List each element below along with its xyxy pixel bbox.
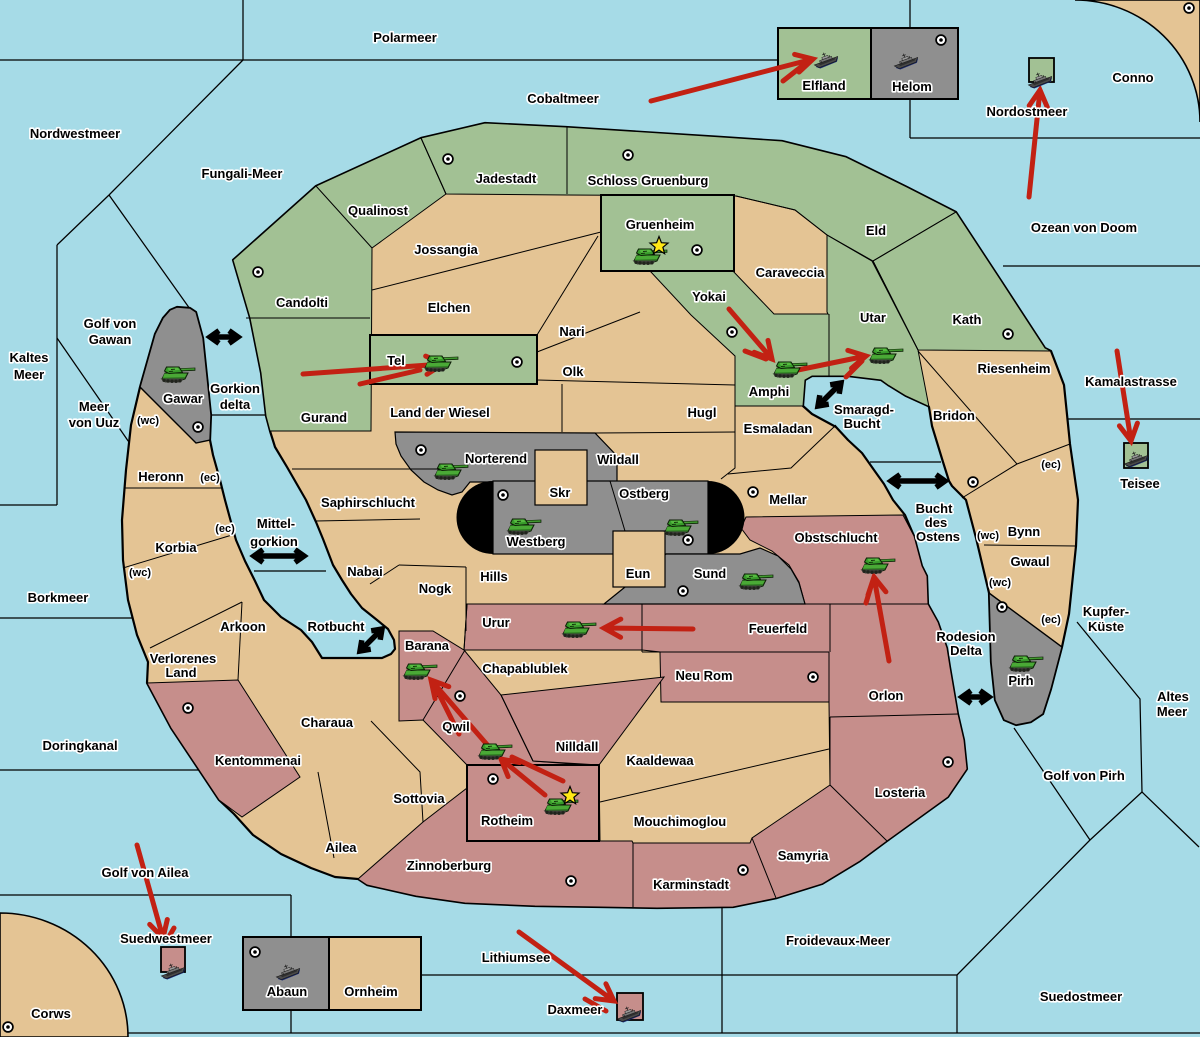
svg-text:Bynn: Bynn	[1008, 524, 1041, 539]
svg-text:Daxmeer: Daxmeer	[548, 1002, 603, 1017]
svg-text:Pirh: Pirh	[1008, 673, 1033, 688]
svg-text:Arkoon: Arkoon	[220, 619, 266, 634]
svg-text:Gorkion: Gorkion	[210, 381, 260, 396]
svg-text:Gwaul: Gwaul	[1010, 554, 1049, 569]
svg-text:(wc): (wc)	[989, 577, 1011, 589]
svg-text:Golf von Ailea: Golf von Ailea	[102, 865, 190, 880]
svg-text:Nordwestmeer: Nordwestmeer	[30, 126, 120, 141]
svg-text:Esmaladan: Esmaladan	[744, 421, 813, 436]
svg-text:Lithiumsee: Lithiumsee	[482, 950, 551, 965]
svg-text:Ostens: Ostens	[916, 529, 960, 544]
svg-text:(wc): (wc)	[137, 415, 159, 427]
svg-text:Kupfer-: Kupfer-	[1083, 604, 1129, 619]
svg-text:Kamalastrasse: Kamalastrasse	[1085, 374, 1177, 389]
svg-text:Kentommenai: Kentommenai	[215, 753, 301, 768]
svg-text:Chapablublek: Chapablublek	[482, 661, 568, 676]
svg-text:des: des	[925, 515, 947, 530]
svg-text:Gawan: Gawan	[89, 332, 132, 347]
svg-text:(wc): (wc)	[129, 567, 151, 579]
svg-text:Rotbucht: Rotbucht	[307, 619, 365, 634]
svg-text:Gawar: Gawar	[163, 391, 203, 406]
svg-text:Tel: Tel	[387, 353, 405, 368]
svg-text:Charaua: Charaua	[301, 715, 354, 730]
svg-text:von Uuz: von Uuz	[69, 415, 120, 430]
svg-text:Meer: Meer	[1157, 704, 1187, 719]
svg-text:Golf von: Golf von	[84, 316, 137, 331]
svg-text:Bucht: Bucht	[916, 501, 954, 516]
svg-text:Orlon: Orlon	[869, 688, 904, 703]
svg-text:gorkion: gorkion	[250, 534, 298, 549]
svg-text:Polarmeer: Polarmeer	[373, 30, 437, 45]
svg-text:Jadestadt: Jadestadt	[476, 171, 537, 186]
svg-text:Gruenheim: Gruenheim	[626, 217, 695, 232]
svg-text:Eun: Eun	[626, 566, 651, 581]
svg-text:(wc): (wc)	[977, 530, 999, 542]
svg-text:Altes: Altes	[1157, 689, 1189, 704]
svg-text:Delta: Delta	[950, 643, 983, 658]
svg-text:Qualinost: Qualinost	[348, 203, 409, 218]
svg-text:Feuerfeld: Feuerfeld	[749, 621, 808, 636]
svg-text:(ec): (ec)	[1041, 614, 1061, 626]
svg-text:Saphirschlucht: Saphirschlucht	[321, 495, 416, 510]
svg-text:Land: Land	[165, 665, 196, 680]
svg-text:Hugl: Hugl	[688, 405, 717, 420]
svg-text:Conno: Conno	[1112, 70, 1153, 85]
svg-text:Suedwestmeer: Suedwestmeer	[120, 931, 212, 946]
svg-text:Nabai: Nabai	[347, 564, 382, 579]
svg-text:Suedostmeer: Suedostmeer	[1040, 989, 1122, 1004]
svg-text:Nari: Nari	[559, 324, 584, 339]
svg-text:Teisee: Teisee	[1120, 476, 1160, 491]
svg-text:Utar: Utar	[860, 310, 886, 325]
svg-text:Kaaldewaa: Kaaldewaa	[626, 753, 694, 768]
svg-text:Ornheim: Ornheim	[344, 984, 397, 999]
svg-text:Froidevaux-Meer: Froidevaux-Meer	[786, 933, 890, 948]
svg-text:Norterend: Norterend	[465, 451, 527, 466]
svg-text:Nordostmeer: Nordostmeer	[987, 104, 1068, 119]
svg-text:Eld: Eld	[866, 223, 886, 238]
svg-text:Sund: Sund	[694, 566, 727, 581]
svg-text:Borkmeer: Borkmeer	[28, 590, 89, 605]
svg-text:Bridon: Bridon	[933, 408, 975, 423]
svg-text:Westberg: Westberg	[507, 534, 566, 549]
svg-text:Verlorenes: Verlorenes	[150, 651, 217, 666]
svg-text:Kath: Kath	[953, 312, 982, 327]
svg-text:Sottovia: Sottovia	[393, 791, 445, 806]
svg-text:Bucht: Bucht	[844, 416, 882, 431]
svg-text:Smaragd-: Smaragd-	[834, 402, 894, 417]
svg-text:Meer: Meer	[14, 367, 44, 382]
svg-text:Mellar: Mellar	[769, 492, 807, 507]
svg-text:Gurand: Gurand	[301, 410, 347, 425]
svg-text:Rotheim: Rotheim	[481, 813, 533, 828]
svg-text:Caraveccia: Caraveccia	[756, 265, 825, 280]
svg-text:(ec): (ec)	[215, 523, 235, 535]
svg-text:Olk: Olk	[563, 364, 585, 379]
svg-text:Neu Rom: Neu Rom	[675, 668, 732, 683]
svg-text:Hills: Hills	[480, 569, 507, 584]
svg-text:(ec): (ec)	[1041, 459, 1061, 471]
svg-text:Qwil: Qwil	[442, 719, 469, 734]
svg-text:Yokai: Yokai	[692, 289, 726, 304]
svg-text:Korbia: Korbia	[155, 540, 197, 555]
svg-text:Obstschlucht: Obstschlucht	[794, 530, 878, 545]
svg-text:Ailea: Ailea	[325, 840, 357, 855]
svg-text:Urur: Urur	[482, 615, 509, 630]
svg-text:Fungali-Meer: Fungali-Meer	[202, 166, 283, 181]
svg-text:Barana: Barana	[405, 638, 450, 653]
svg-text:Samyria: Samyria	[778, 848, 829, 863]
svg-text:Riesenheim: Riesenheim	[978, 361, 1051, 376]
svg-text:Abaun: Abaun	[267, 984, 308, 999]
svg-text:Skr: Skr	[550, 485, 571, 500]
svg-text:Candolti: Candolti	[276, 295, 328, 310]
svg-text:Mouchimoglou: Mouchimoglou	[634, 814, 726, 829]
svg-text:Jossangia: Jossangia	[414, 242, 478, 257]
svg-text:Ozean von Doom: Ozean von Doom	[1031, 220, 1137, 235]
svg-text:Zinnoberburg: Zinnoberburg	[407, 858, 492, 873]
svg-text:Nogk: Nogk	[419, 581, 452, 596]
svg-text:Ostberg: Ostberg	[619, 486, 669, 501]
svg-text:Meer: Meer	[79, 399, 109, 414]
svg-text:Corws: Corws	[31, 1006, 71, 1021]
svg-text:Golf von Pirh: Golf von Pirh	[1043, 768, 1125, 783]
svg-text:Schloss Gruenburg: Schloss Gruenburg	[588, 173, 709, 188]
svg-text:Mittel-: Mittel-	[257, 516, 295, 531]
svg-text:delta: delta	[220, 397, 251, 412]
svg-text:Land der Wiesel: Land der Wiesel	[390, 405, 490, 420]
svg-text:Wildall: Wildall	[597, 452, 639, 467]
svg-text:Doringkanal: Doringkanal	[42, 738, 117, 753]
svg-text:Losteria: Losteria	[875, 785, 926, 800]
svg-text:Elfland: Elfland	[802, 78, 845, 93]
svg-text:Küste: Küste	[1088, 619, 1124, 634]
svg-text:Amphi: Amphi	[749, 384, 789, 399]
svg-text:Elchen: Elchen	[428, 300, 471, 315]
svg-text:Nilldall: Nilldall	[556, 739, 599, 754]
svg-text:Helom: Helom	[892, 79, 932, 94]
svg-text:Cobaltmeer: Cobaltmeer	[527, 91, 599, 106]
svg-text:Rodesion: Rodesion	[936, 629, 995, 644]
svg-text:Kaltes: Kaltes	[9, 350, 48, 365]
svg-text:Heronn: Heronn	[138, 469, 184, 484]
svg-text:Karminstadt: Karminstadt	[653, 877, 730, 892]
svg-text:(ec): (ec)	[200, 472, 220, 484]
